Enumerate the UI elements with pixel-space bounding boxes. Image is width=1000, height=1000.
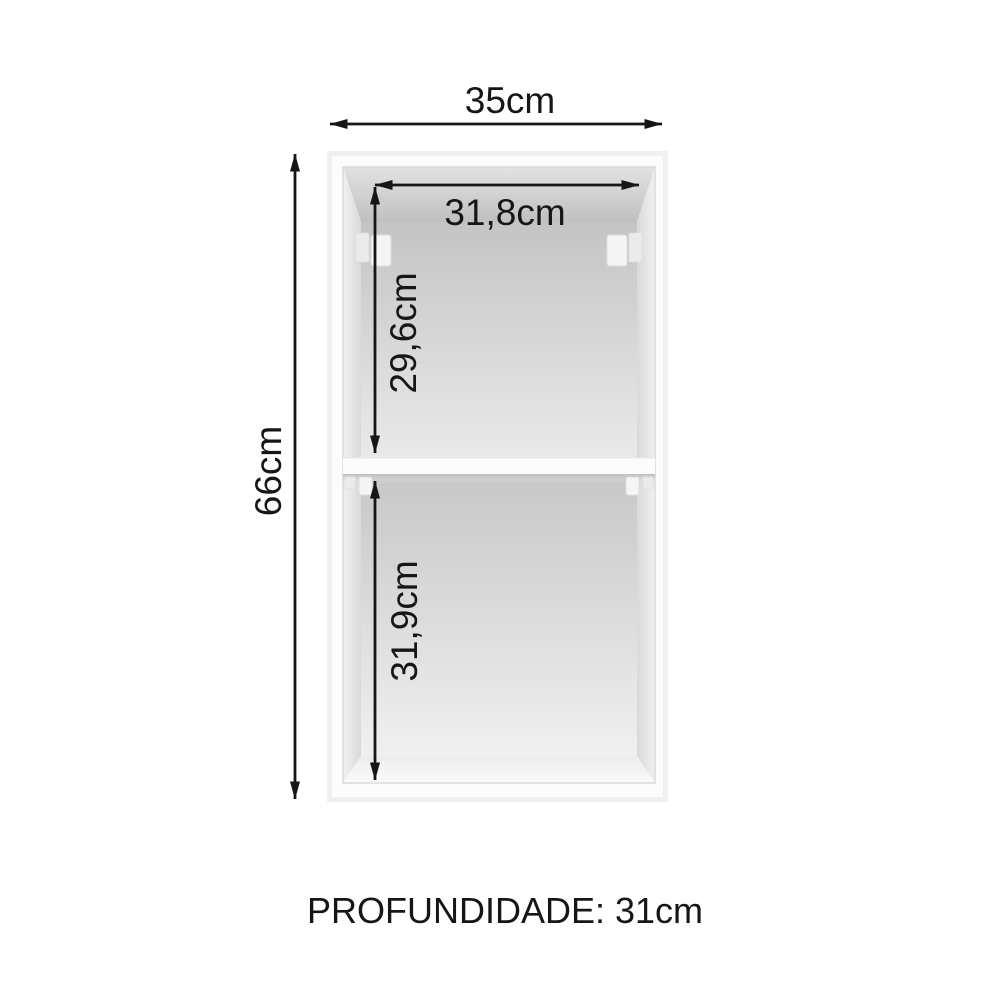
upper-height-dimension-label: 29,6cm — [383, 272, 424, 393]
total-height-dimension-label: 66cm — [248, 426, 289, 516]
right-hinge-plate — [607, 233, 642, 266]
shelf-front-edge — [343, 457, 655, 474]
lower-height-dimension-label: 31,9cm — [384, 560, 425, 681]
shelf-shadow — [343, 474, 655, 484]
right-hinge-tab — [629, 233, 642, 262]
left-hinge-tab — [356, 233, 369, 262]
right-hinge-block — [607, 235, 627, 266]
cabinet-body — [327, 151, 668, 802]
left-shelf-support-tab — [345, 477, 355, 489]
cabinet-dimensions-diagram: 35cm 31,8cm 29,6cm 66cm 31,9cm PROFUNDID… — [0, 0, 1000, 1000]
left-hinge-plate — [356, 233, 391, 266]
inner-width-dimension-label: 31,8cm — [444, 192, 565, 233]
depth-label: PROFUNDIDADE: 31cm — [307, 890, 703, 931]
cabinet-interior-floor — [343, 756, 655, 783]
middle-shelf — [343, 457, 655, 484]
right-shelf-support-tab — [643, 477, 653, 489]
left-shelf-support-block — [359, 477, 372, 495]
right-shelf-support-block — [626, 477, 639, 495]
product-dimension-page: 35cm 31,8cm 29,6cm 66cm 31,9cm PROFUNDID… — [0, 0, 1000, 1000]
width-dimension-label: 35cm — [465, 80, 555, 121]
